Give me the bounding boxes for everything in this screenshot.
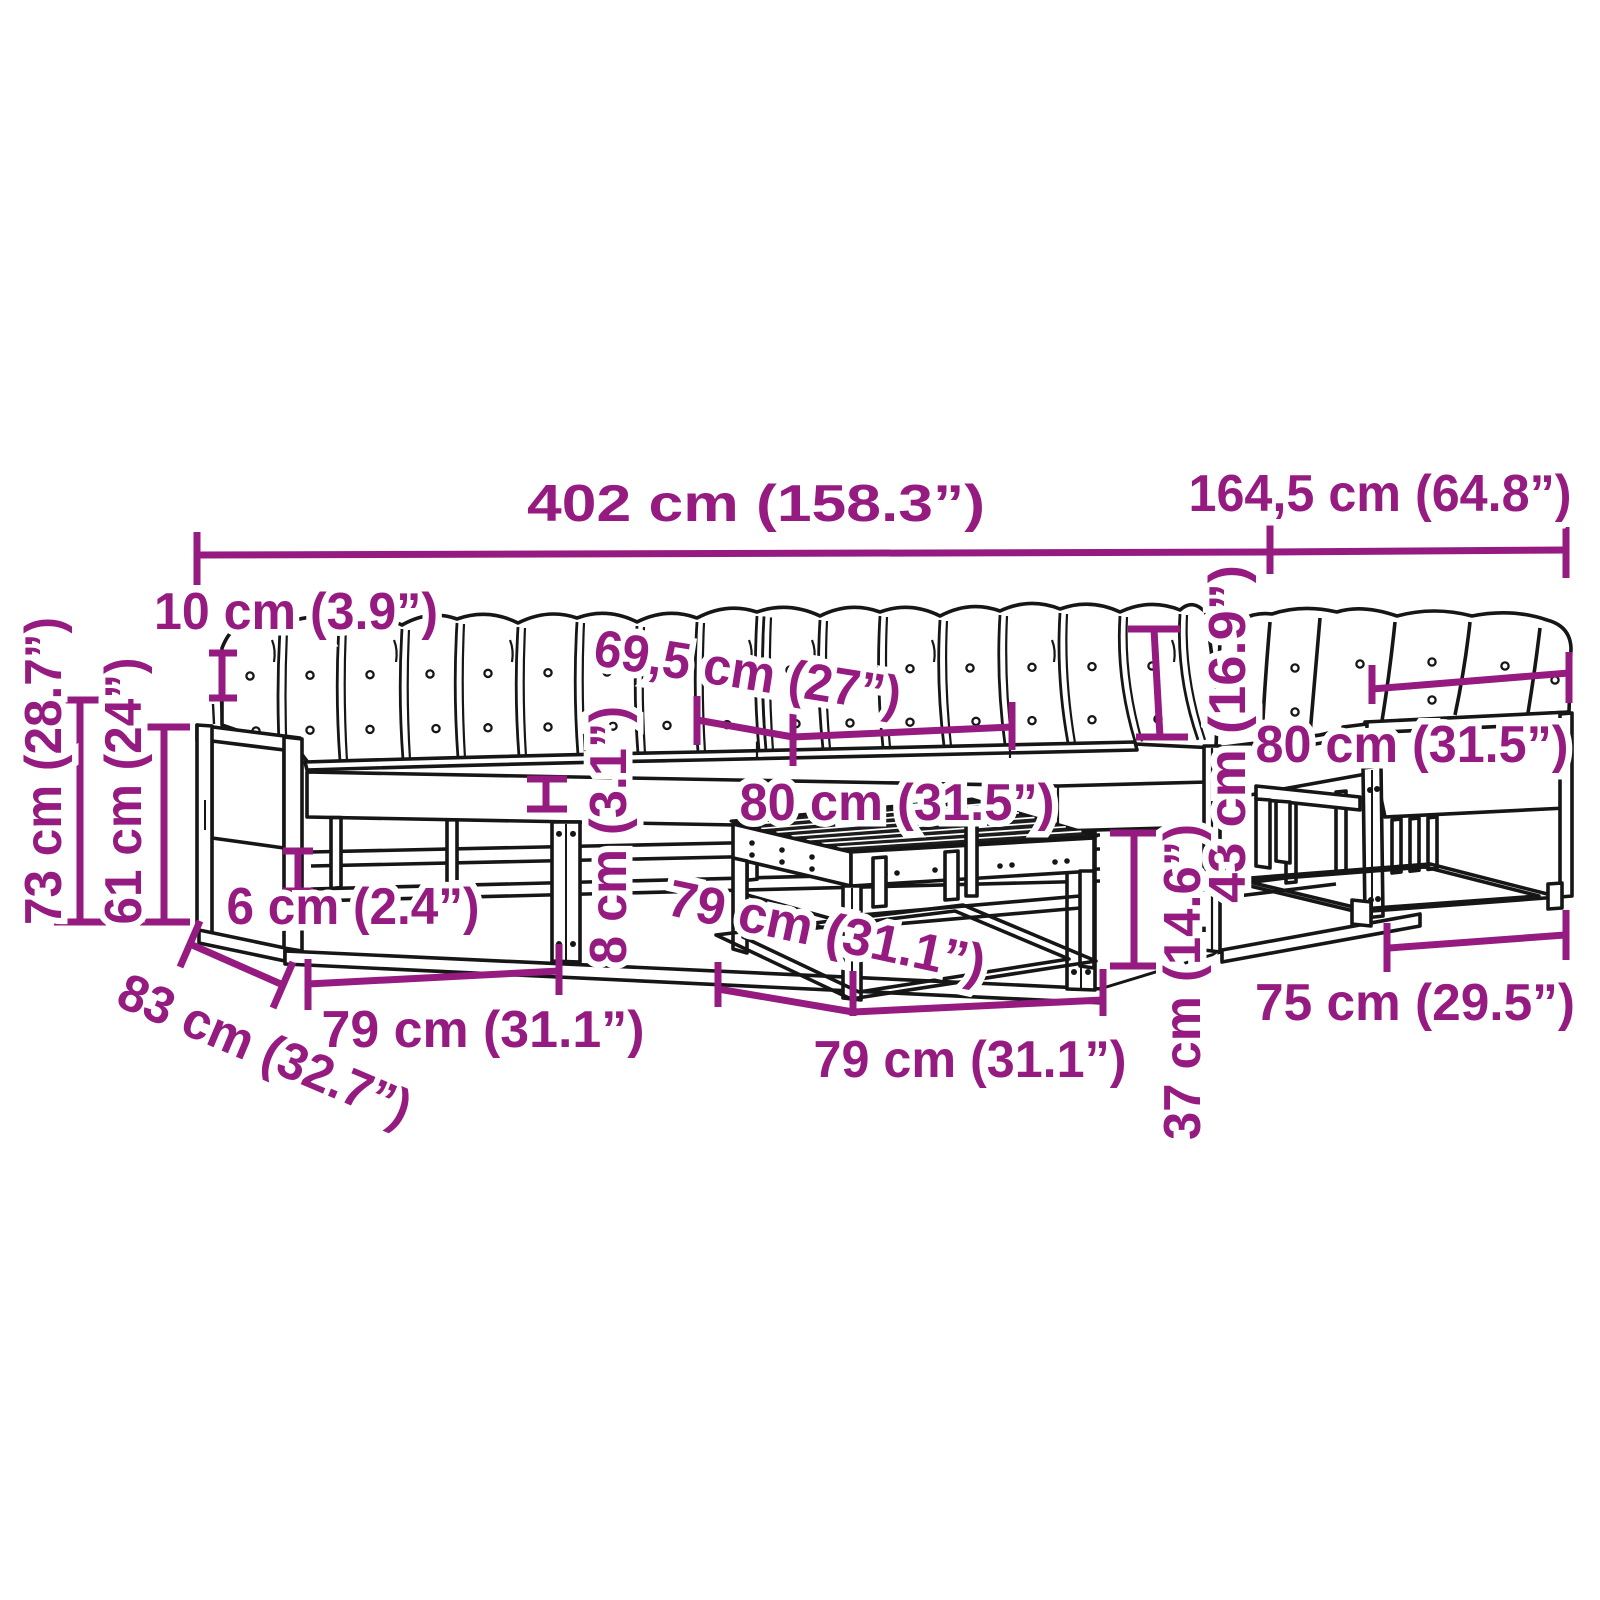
svg-text:73 cm (28.7”): 73 cm (28.7”)	[15, 617, 73, 925]
svg-text:79 cm (31.1”): 79 cm (31.1”)	[814, 1031, 1127, 1089]
svg-text:75 cm (29.5”): 75 cm (29.5”)	[1255, 974, 1575, 1032]
svg-text:61 cm (24”): 61 cm (24”)	[95, 658, 153, 925]
svg-text:79 cm (31.1”): 79 cm (31.1”)	[322, 1001, 645, 1059]
svg-text:8 cm (3.1”): 8 cm (3.1”)	[580, 706, 638, 964]
svg-text:80 cm (31.5”): 80 cm (31.5”)	[1256, 716, 1569, 774]
svg-text:37 cm (14.6”): 37 cm (14.6”)	[1154, 824, 1212, 1140]
svg-text:10 cm (3.9”): 10 cm (3.9”)	[154, 583, 438, 641]
svg-text:164,5 cm (64.8”): 164,5 cm (64.8”)	[1189, 465, 1572, 523]
svg-text:6 cm (2.4”): 6 cm (2.4”)	[227, 878, 480, 936]
svg-text:402 cm (158.3”): 402 cm (158.3”)	[527, 475, 985, 533]
svg-text:80 cm (31.5”): 80 cm (31.5”)	[740, 774, 1055, 832]
